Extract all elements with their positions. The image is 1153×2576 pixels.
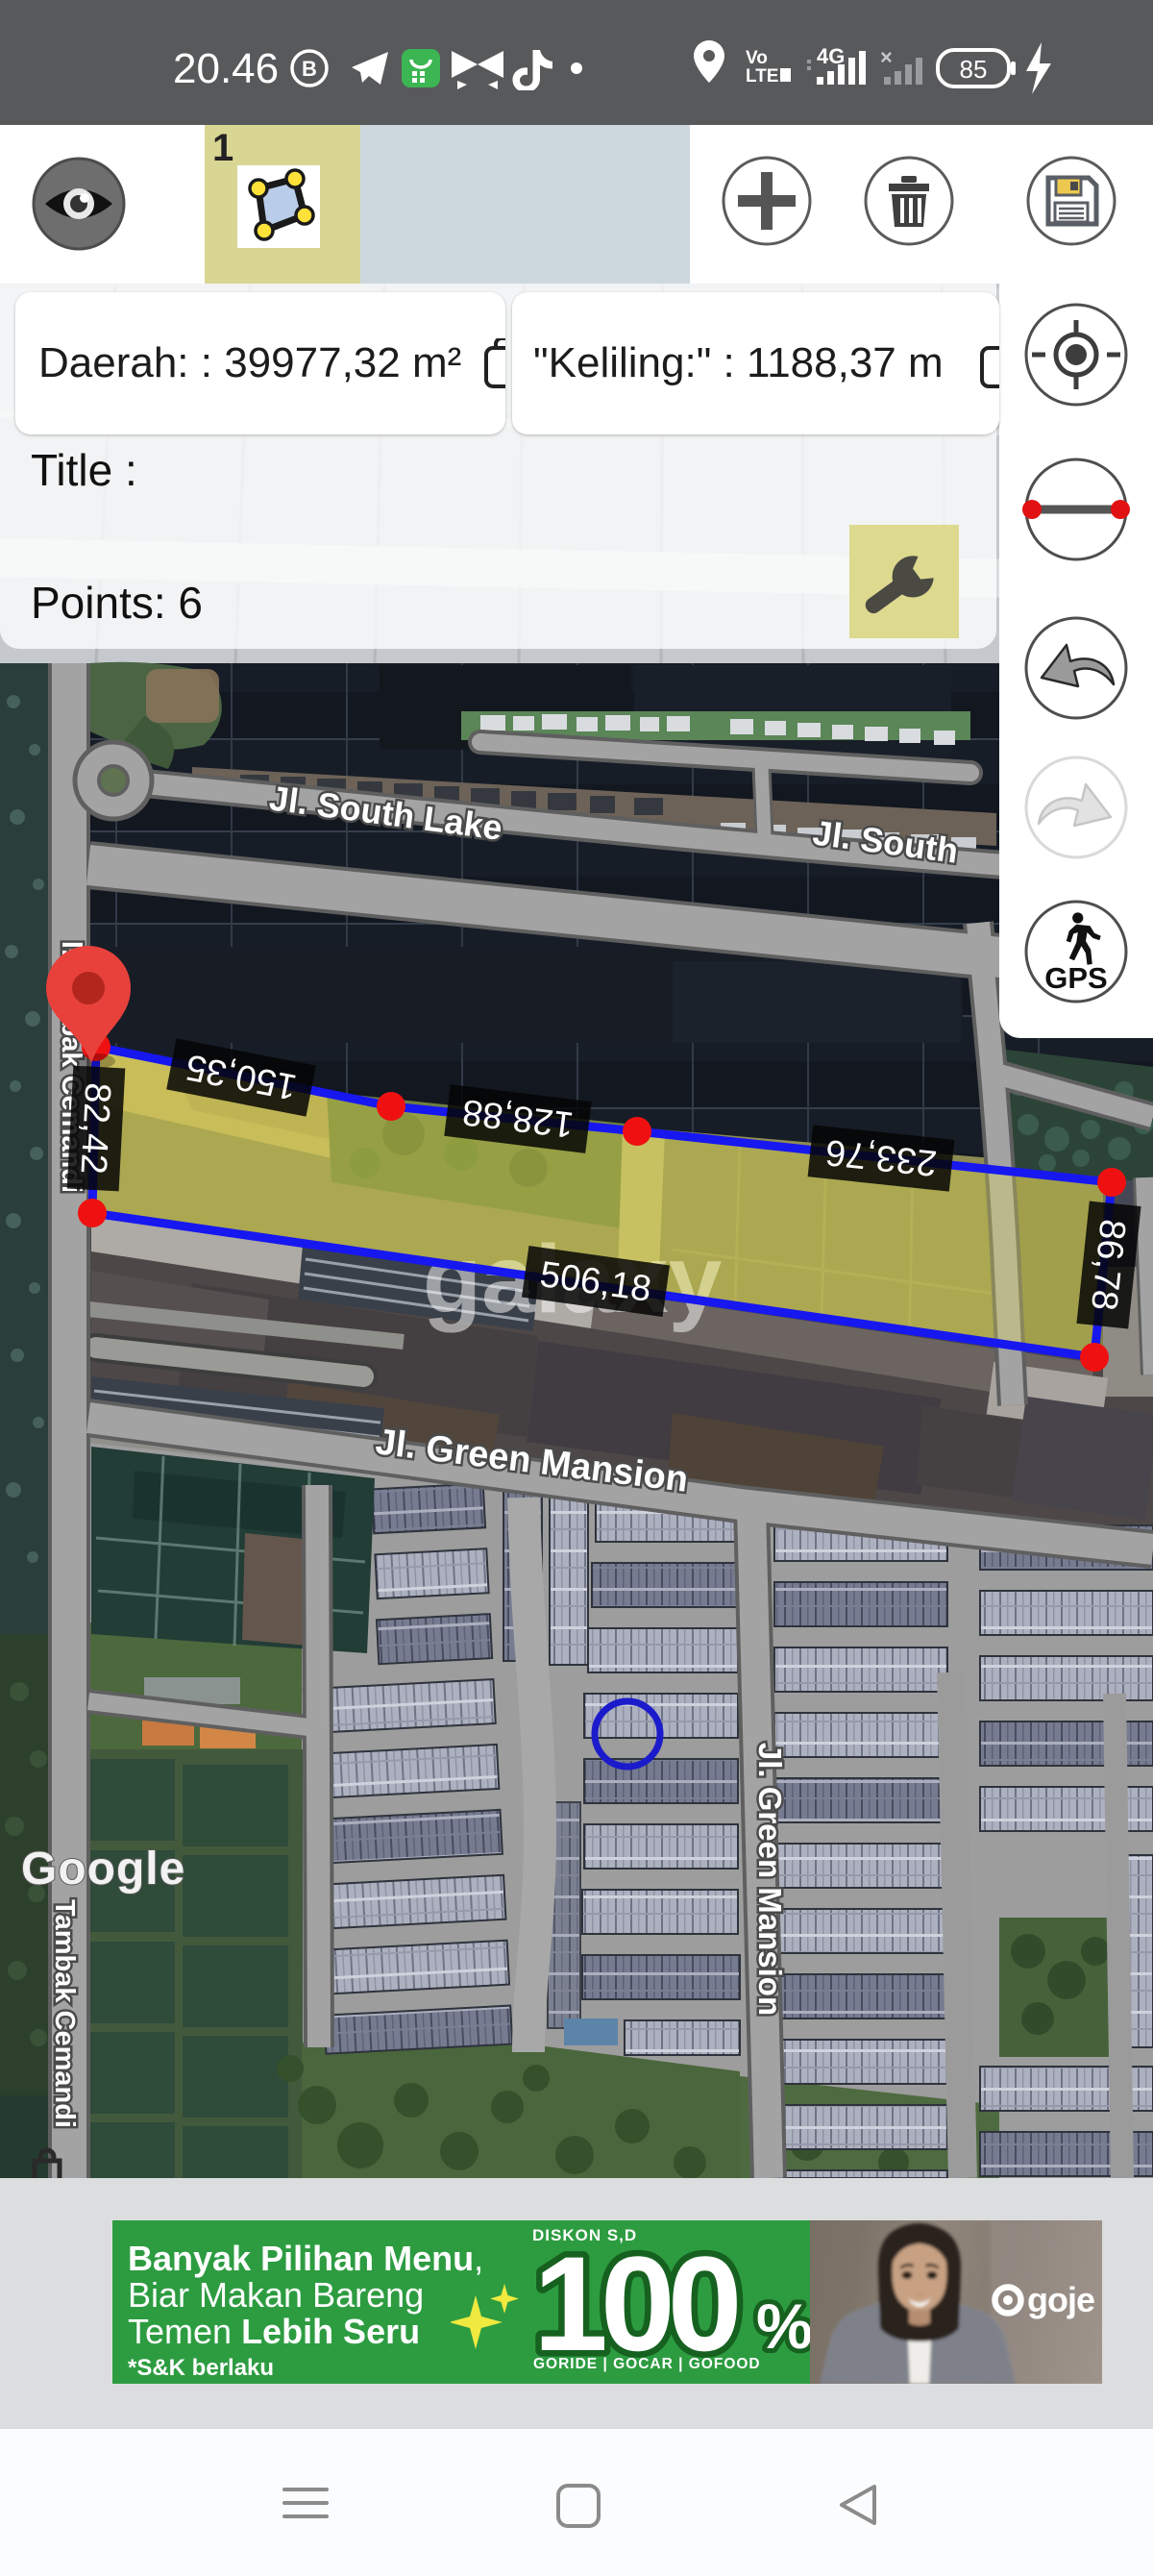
svg-text:goje: goje — [1027, 2280, 1094, 2319]
svg-text:B: B — [302, 57, 317, 81]
svg-text:×: × — [880, 45, 893, 69]
svg-text:Vo: Vo — [746, 48, 768, 68]
svg-text:Tambak Cemandi: Tambak Cemandi — [49, 1899, 80, 2128]
svg-text:LTE: LTE — [746, 66, 778, 87]
svg-text:100: 100 — [533, 2234, 738, 2374]
svg-text:Google: Google — [21, 1844, 185, 1895]
svg-text:Jl. Green Mansion: Jl. Green Mansion — [752, 1743, 788, 2016]
svg-text:82,42: 82,42 — [73, 1081, 118, 1175]
svg-text:85: 85 — [960, 55, 988, 84]
svg-text:GPS: GPS — [1044, 961, 1107, 995]
svg-text:%: % — [756, 2291, 813, 2362]
